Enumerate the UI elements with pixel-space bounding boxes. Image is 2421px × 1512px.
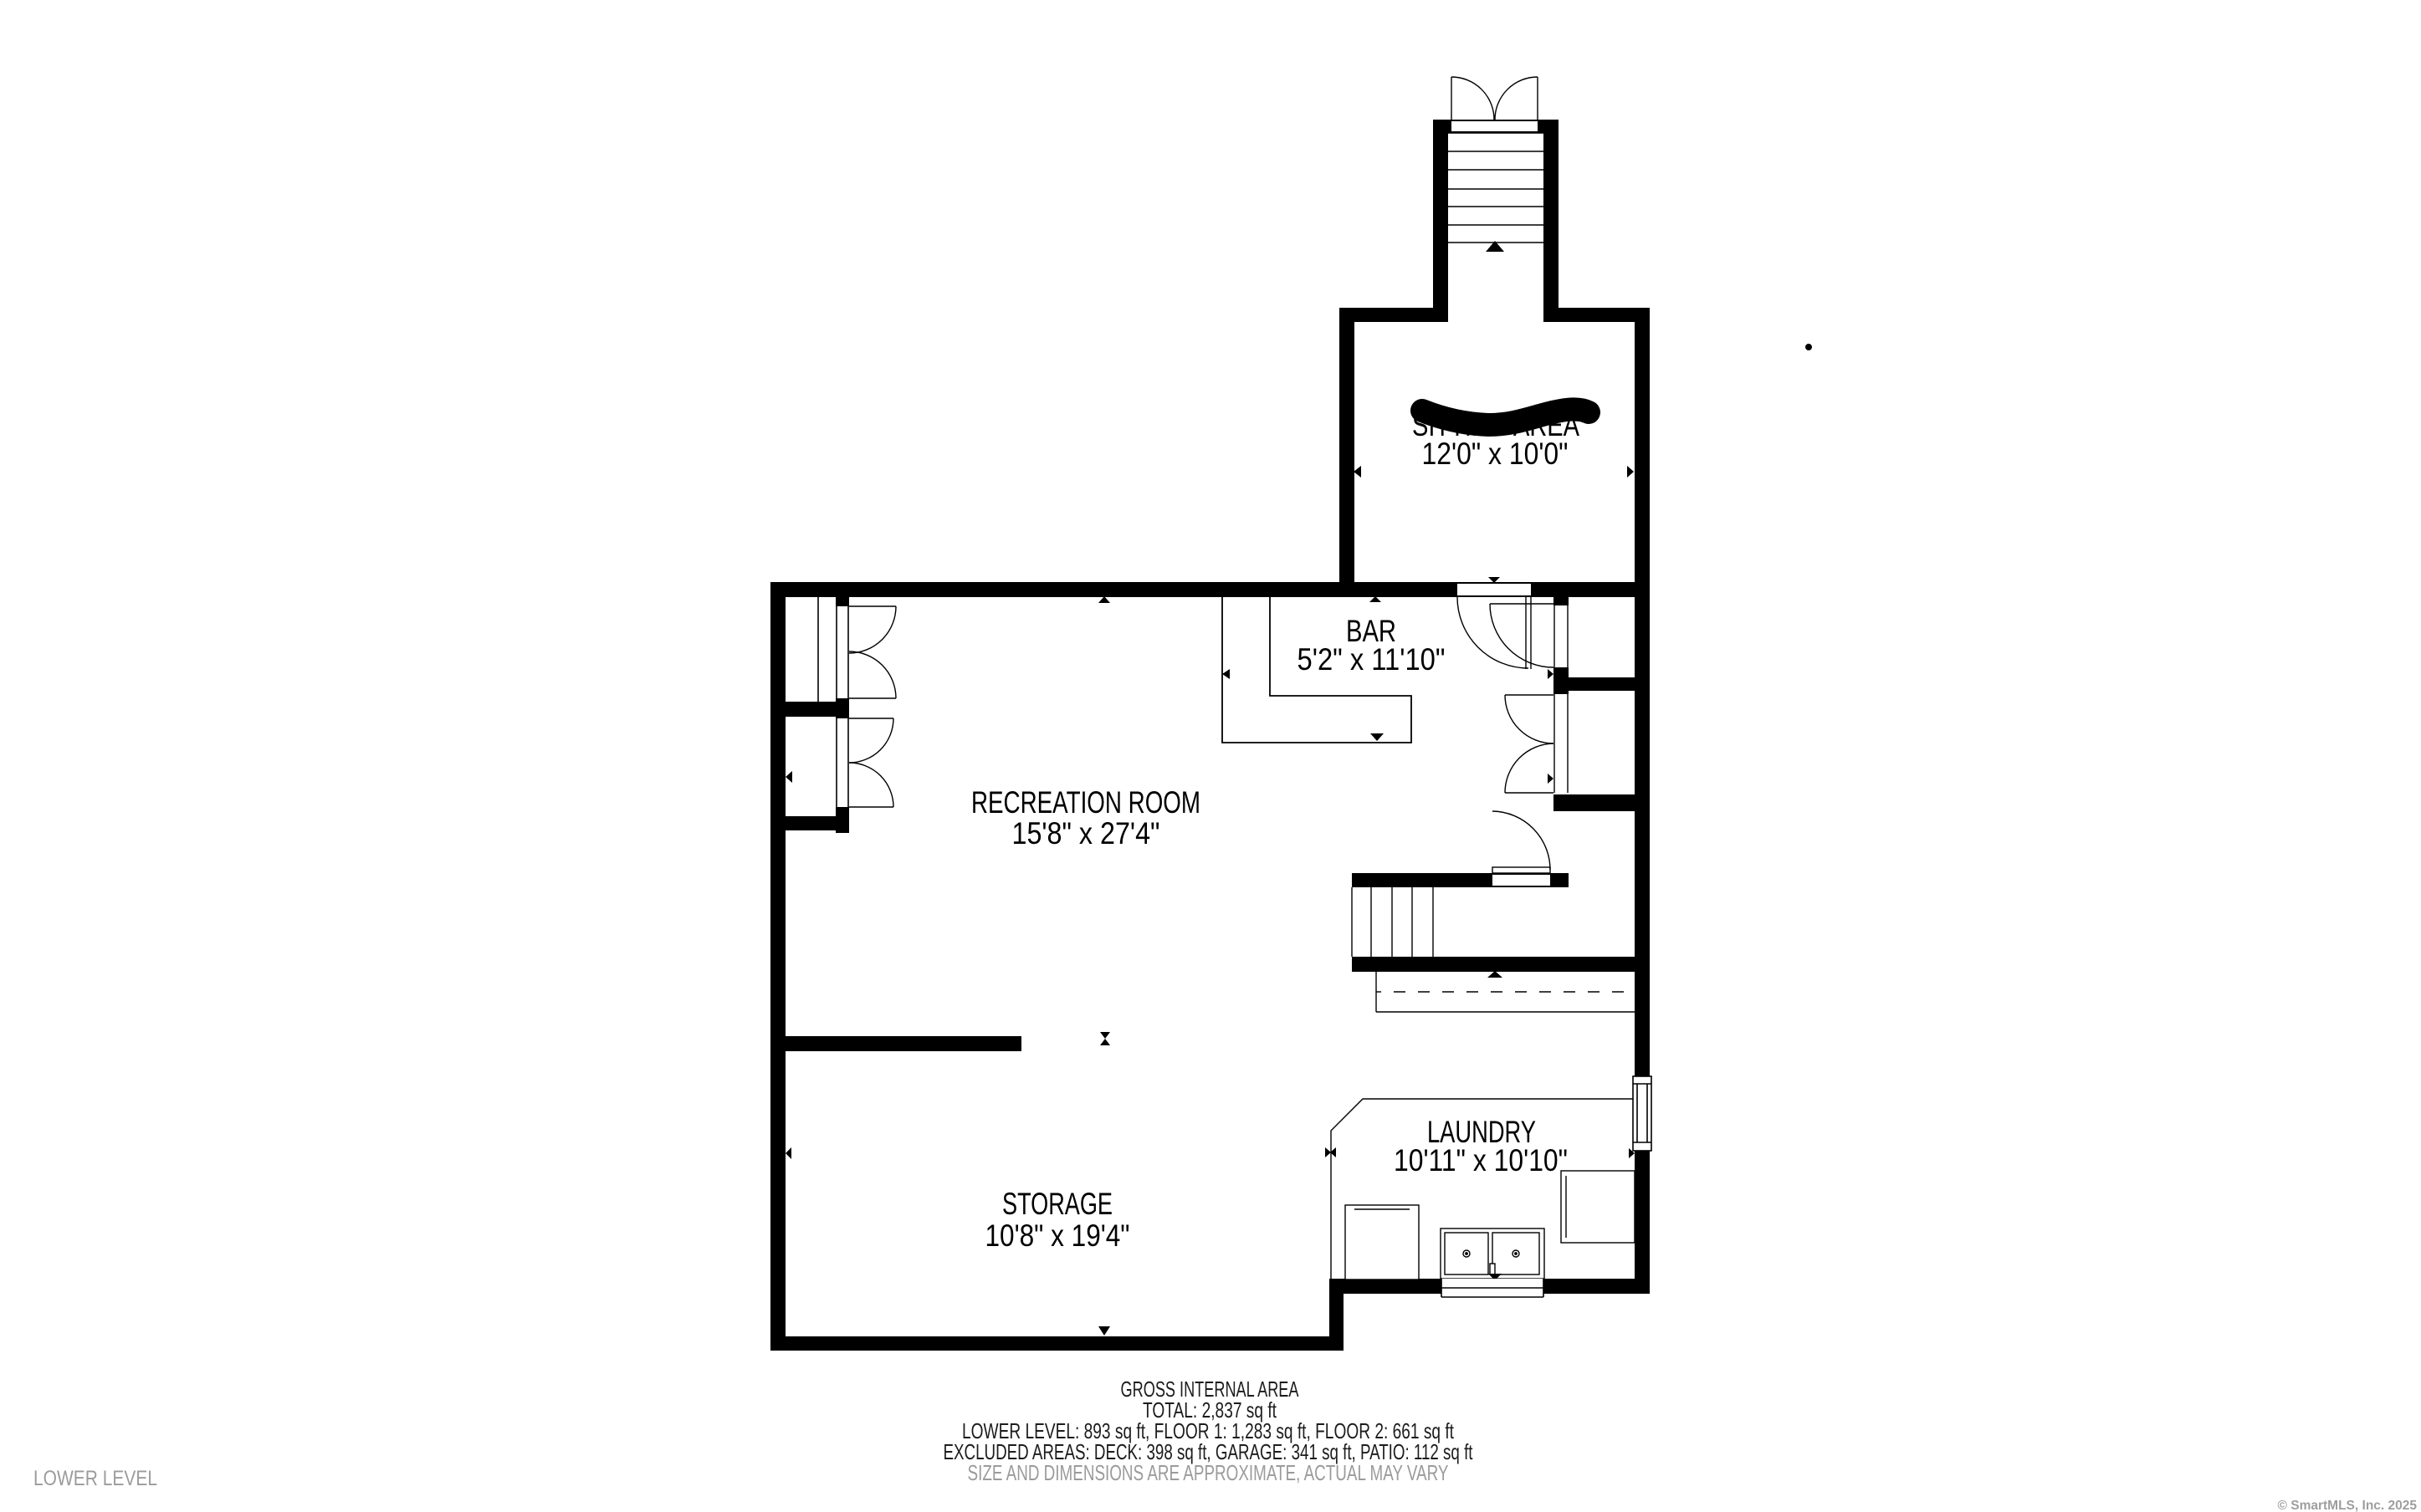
svg-text:RECREATION ROOM: RECREATION ROOM: [971, 785, 1200, 820]
svg-text:12'0" x 10'0": 12'0" x 10'0": [1422, 437, 1569, 471]
svg-text:15'8" x 27'4": 15'8" x 27'4": [1012, 816, 1160, 850]
svg-text:5'2" x 11'10": 5'2" x 11'10": [1298, 642, 1446, 677]
svg-text:SIZE AND DIMENSIONS ARE APPROX: SIZE AND DIMENSIONS ARE APPROXIMATE, ACT…: [968, 1460, 1449, 1485]
svg-text:10'11" x 10'10": 10'11" x 10'10": [1394, 1143, 1568, 1177]
svg-text:10'8" x 19'4": 10'8" x 19'4": [985, 1218, 1130, 1253]
svg-text:LOWER LEVEL: LOWER LEVEL: [33, 1467, 157, 1490]
svg-text:STORAGE: STORAGE: [1002, 1187, 1113, 1221]
svg-text:© SmartMLS, Inc. 2025: © SmartMLS, Inc. 2025: [2278, 1499, 2418, 1512]
